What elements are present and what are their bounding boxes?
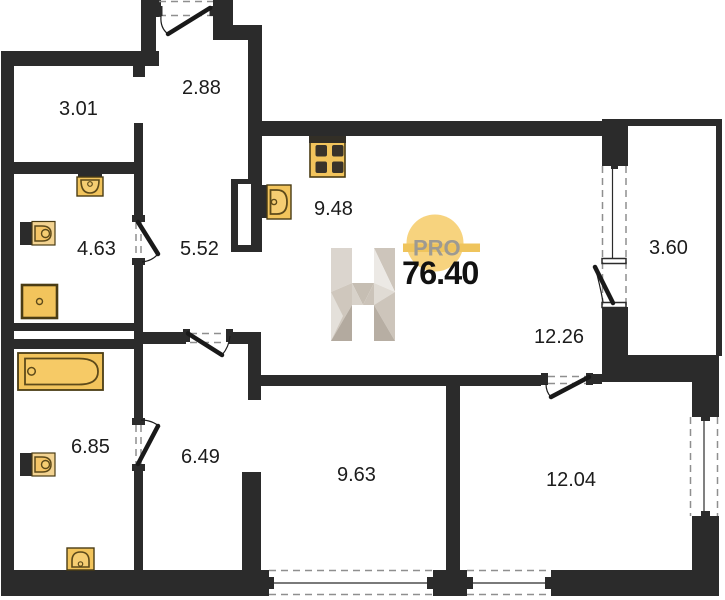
svg-text:3.60: 3.60 [649,237,688,259]
svg-text:9.48: 9.48 [314,198,353,220]
svg-text:3.01: 3.01 [59,98,98,120]
svg-text:12.26: 12.26 [534,326,584,348]
svg-text:12.04: 12.04 [546,469,596,491]
svg-text:6.49: 6.49 [181,446,220,468]
svg-text:5.52: 5.52 [180,238,219,260]
svg-text:4.63: 4.63 [77,238,116,260]
svg-text:76.40: 76.40 [402,255,478,291]
svg-text:6.85: 6.85 [71,436,110,458]
svg-text:9.63: 9.63 [337,464,376,486]
svg-text:2.88: 2.88 [182,77,221,99]
